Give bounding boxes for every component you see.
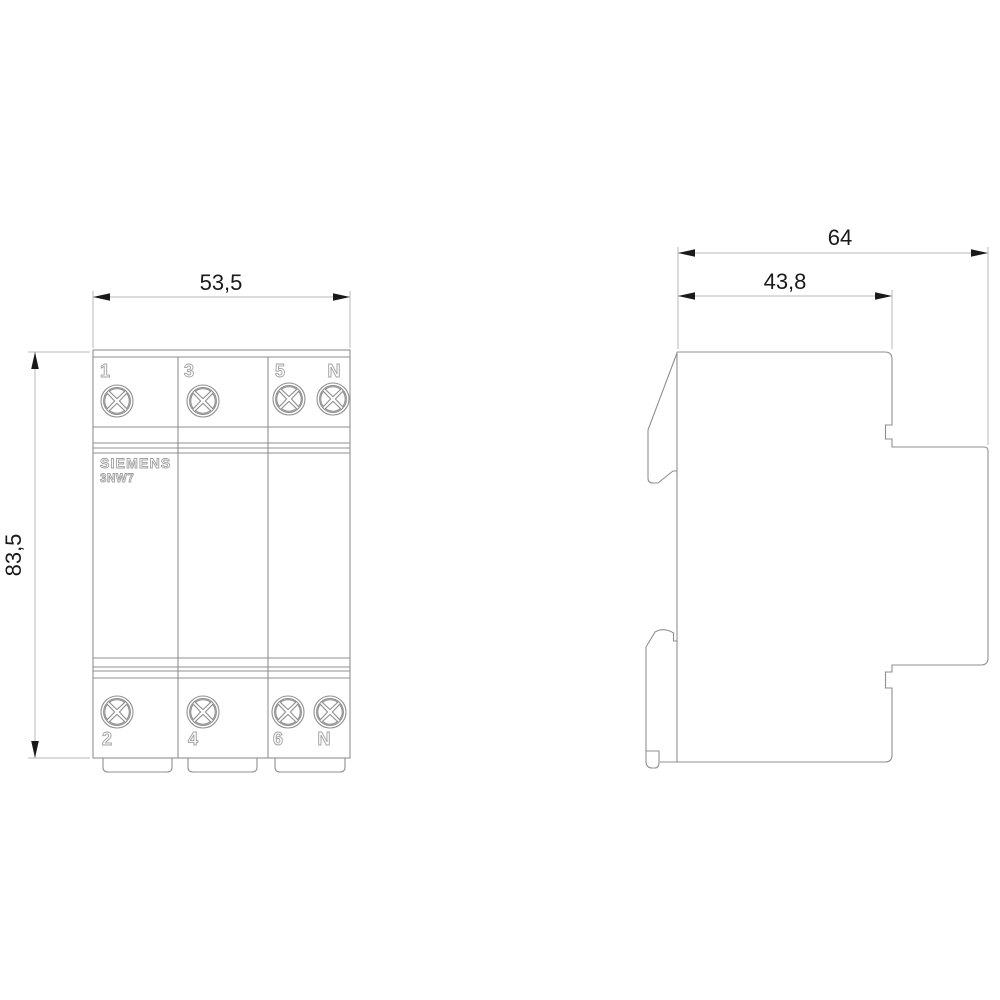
arrow-left-icon xyxy=(93,293,110,301)
terminal-label-4: 4 xyxy=(188,729,198,749)
arrow-up-icon xyxy=(31,352,39,369)
bottom-tab-1 xyxy=(103,758,172,772)
dimension-front-height: 83,5 xyxy=(1,352,39,758)
brand-label: SIEMENS xyxy=(100,455,171,471)
dimension-front-width: 53,5 xyxy=(93,270,350,301)
terminal-label-2: 2 xyxy=(102,729,112,749)
arrow-right-icon xyxy=(971,249,988,257)
bottom-tab-2 xyxy=(188,758,257,772)
model-label: 3NW7 xyxy=(100,473,134,485)
side-body-profile xyxy=(660,352,988,762)
terminal-label-6: 6 xyxy=(273,729,283,749)
technical-dimension-drawing: 1 3 5 N 2 4 6 N SIEMENS 3NW7 53,5 xyxy=(0,0,1000,1000)
front-view: 1 3 5 N 2 4 6 N SIEMENS 3NW7 xyxy=(93,350,350,772)
arrow-left-icon xyxy=(678,249,695,257)
terminal-label-n-bottom: N xyxy=(318,729,331,749)
dimension-front-depth-value: 43,8 xyxy=(764,269,807,294)
din-claw-bottom xyxy=(646,630,677,768)
side-view xyxy=(646,352,988,768)
terminal-label-n-top: N xyxy=(328,361,341,381)
din-claw-top xyxy=(648,353,677,483)
arrow-left-icon xyxy=(678,292,695,300)
terminal-label-3: 3 xyxy=(184,361,194,381)
bottom-tab-3 xyxy=(275,758,345,772)
dimension-total-depth: 64 xyxy=(678,225,988,257)
arrow-down-icon xyxy=(31,741,39,758)
dimension-width-value: 53,5 xyxy=(200,270,243,295)
terminal-label-1: 1 xyxy=(100,361,110,381)
dimension-front-depth: 43,8 xyxy=(678,269,892,300)
arrow-right-icon xyxy=(875,292,892,300)
dimension-height-value: 83,5 xyxy=(1,534,26,577)
dimension-total-depth-value: 64 xyxy=(828,225,852,250)
terminal-label-5: 5 xyxy=(275,361,285,381)
arrow-right-icon xyxy=(333,293,350,301)
front-body-outline xyxy=(93,350,350,758)
